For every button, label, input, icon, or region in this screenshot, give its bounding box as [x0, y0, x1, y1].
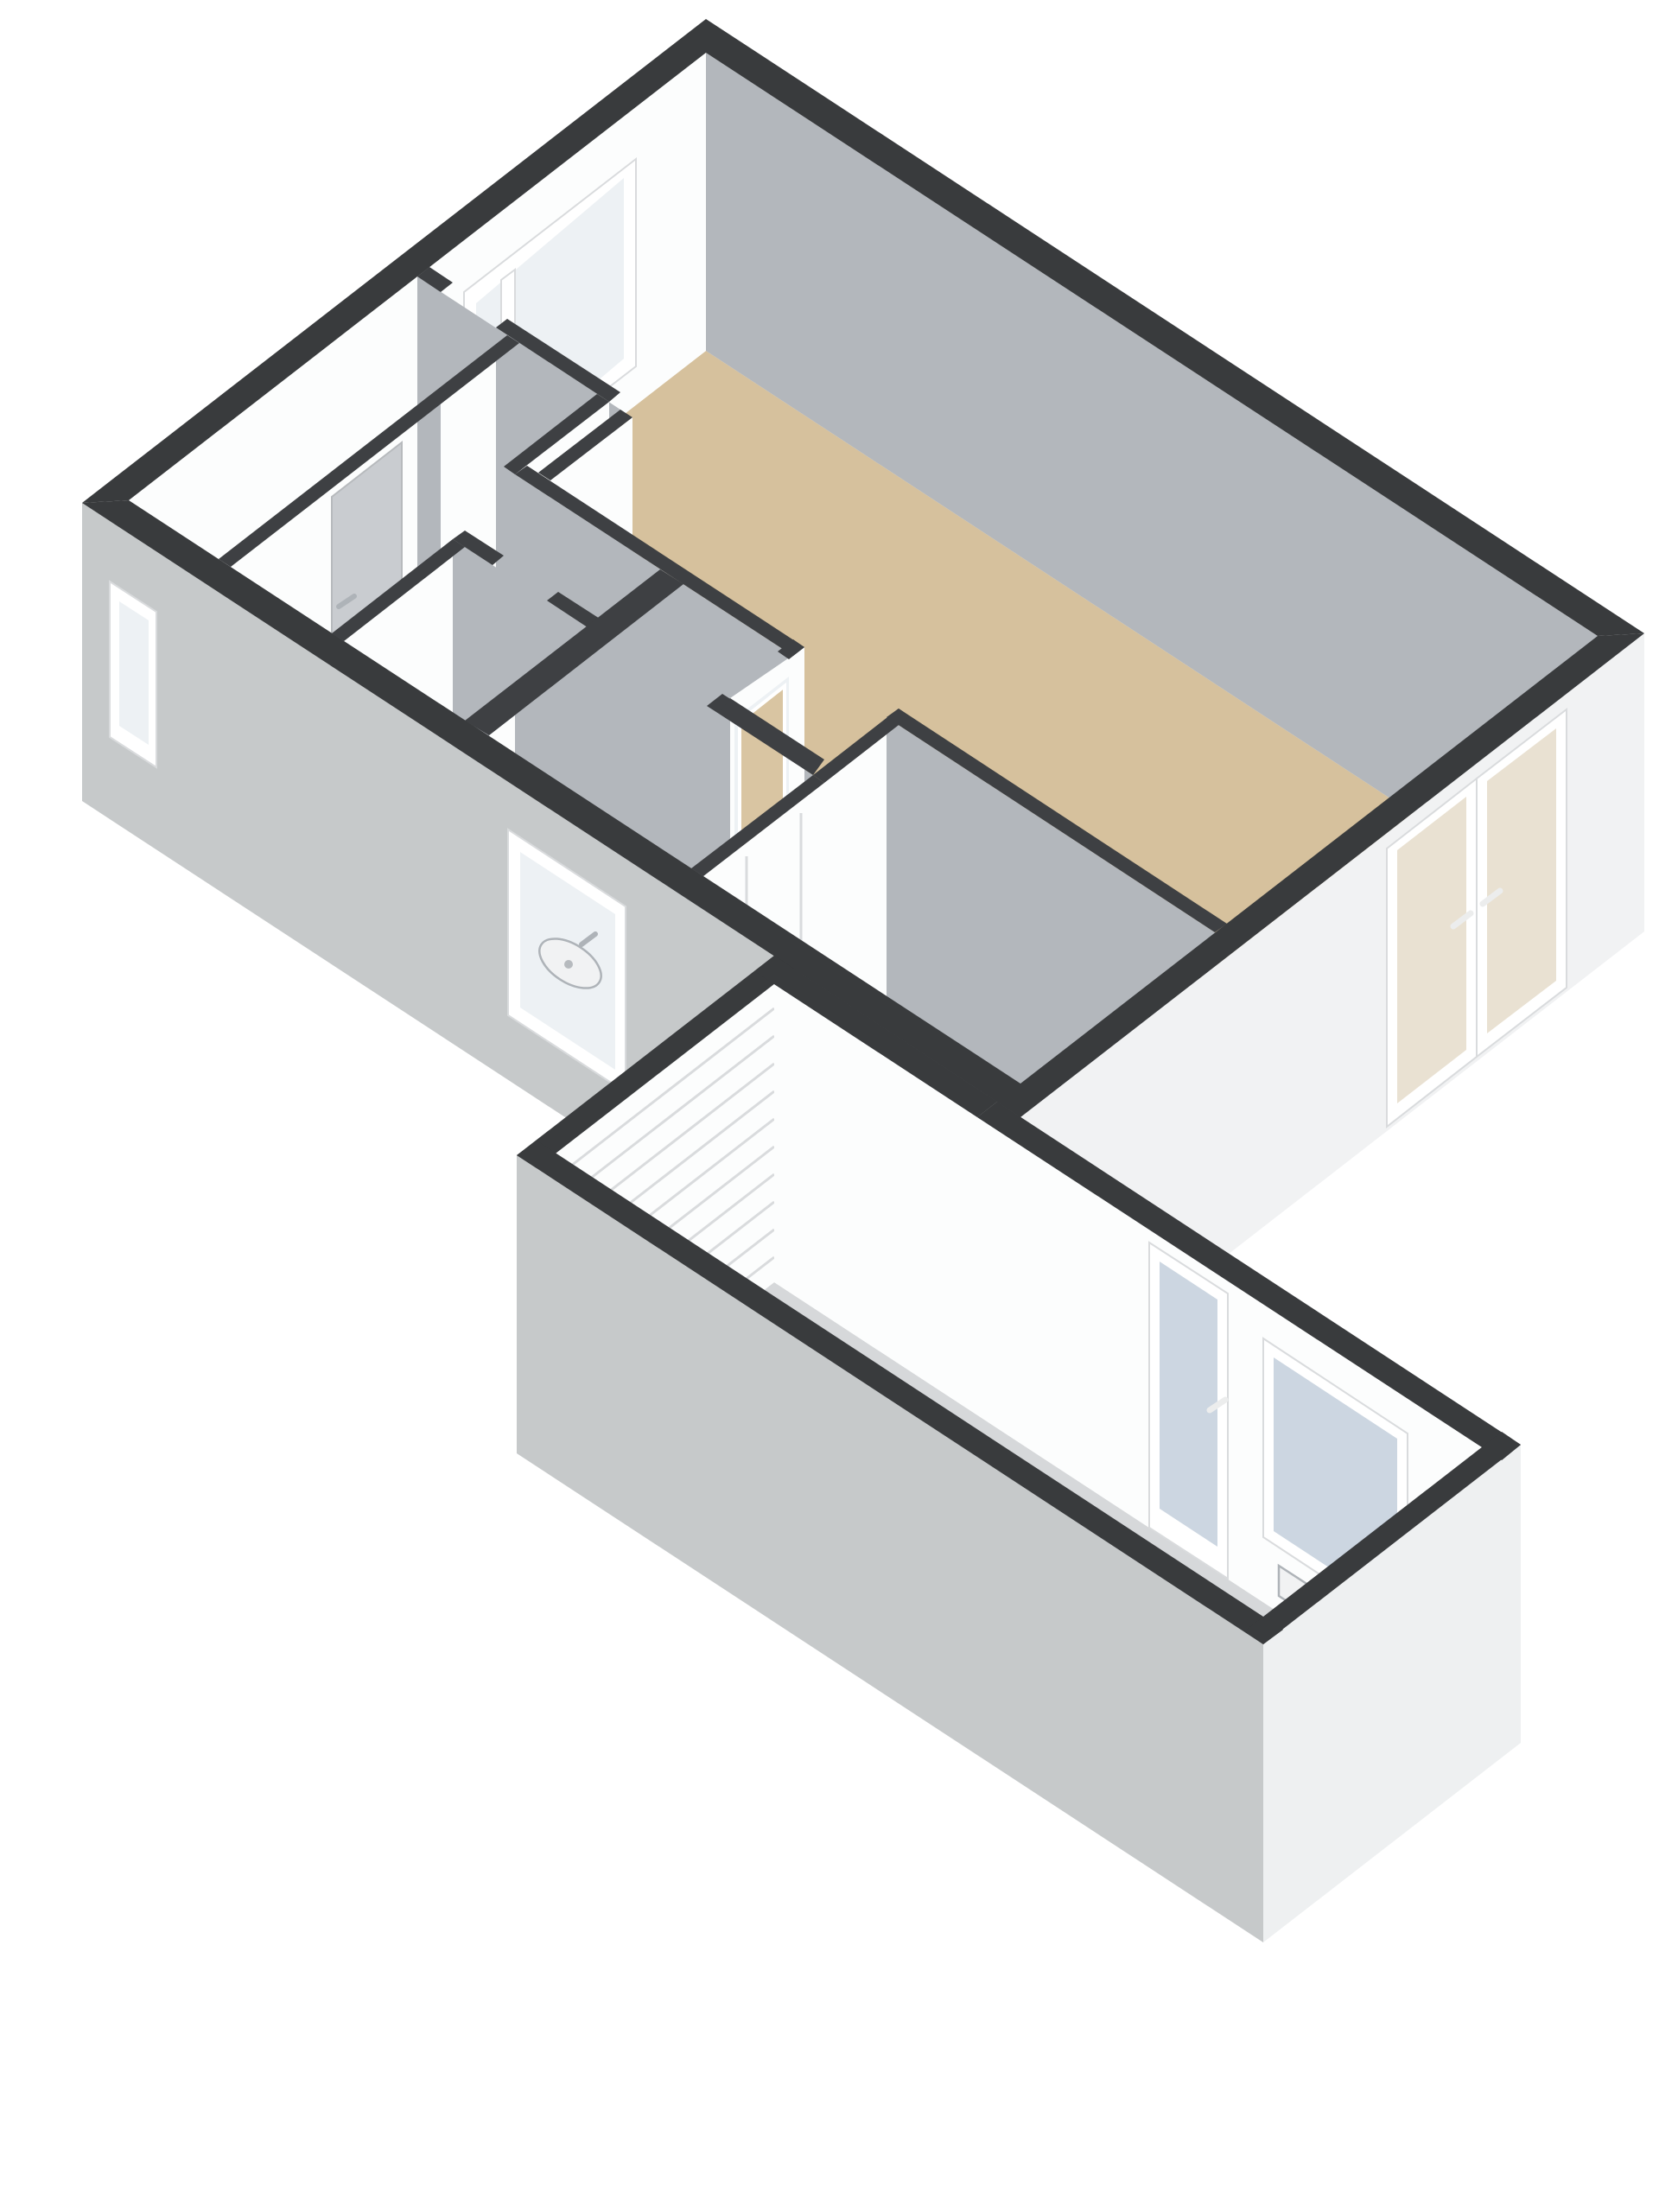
- bathroom-sink-drain: [564, 960, 573, 969]
- garage-glazed-door-glass: [1160, 1262, 1217, 1547]
- wc-window-glass: [119, 601, 149, 745]
- floorplan-canvas: [0, 0, 1659, 2212]
- french-door-right-glass: [1397, 797, 1466, 1103]
- french-door-left-glass: [1487, 728, 1556, 1033]
- floorplan-3d-render: [0, 0, 1659, 2212]
- hall-doorjamb-left: [417, 276, 441, 590]
